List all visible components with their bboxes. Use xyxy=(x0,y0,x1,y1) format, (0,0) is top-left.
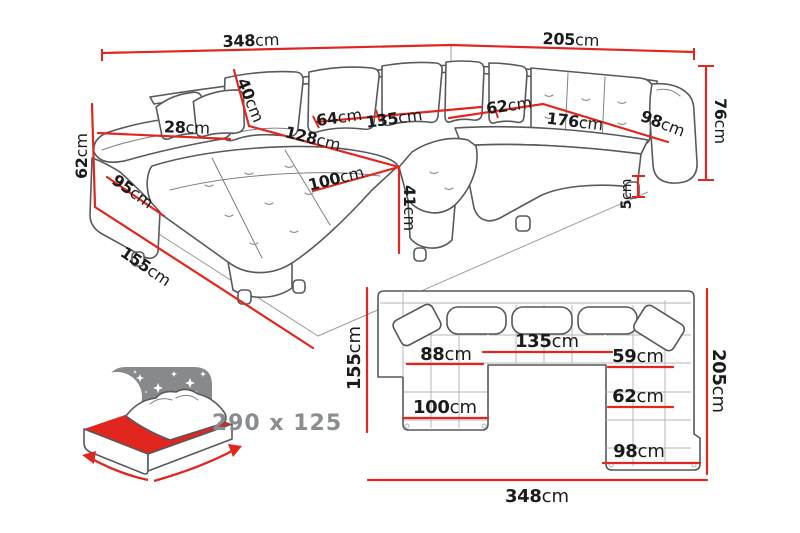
plan-dim-100: 100cm xyxy=(413,397,477,418)
plan-dim-88: 88cm xyxy=(420,344,472,365)
sofa-leg xyxy=(516,216,530,231)
plan-dim-59: 59cm xyxy=(612,346,664,367)
arrow-head xyxy=(228,444,242,457)
sleep-dimensions-label: 290 x 125 xyxy=(212,411,342,436)
dim-height-76: 76cm xyxy=(712,98,731,144)
sleep-function-icon: 290 x 125 xyxy=(82,367,342,481)
diagram-canvas: 348cm205cm76cm62cm95cm155cm28cm40cm64cm1… xyxy=(0,0,800,533)
dim-armrest-28: 28cm xyxy=(164,117,211,138)
dim-height-62: 62cm xyxy=(72,133,91,179)
dim-back-right-205: 205cm xyxy=(542,29,600,50)
plan-dim-98: 98cm xyxy=(613,441,665,462)
plan-back-cushion xyxy=(447,307,506,334)
dim-seat-height-41: 41cm xyxy=(401,185,420,231)
sofa-dimension-diagram: 348cm205cm76cm62cm95cm155cm28cm40cm64cm1… xyxy=(0,0,800,533)
plan-dim-62: 62cm xyxy=(612,386,664,407)
plan-dim-205: 205cm xyxy=(709,349,730,413)
bench-front xyxy=(462,144,641,220)
plan-back-cushion xyxy=(578,307,637,334)
plan-dim-135: 135cm xyxy=(515,331,579,352)
plan-dim-155: 155cm xyxy=(344,326,365,390)
plan-dim-348: 348cm xyxy=(505,486,569,507)
dim-back-left-348: 348cm xyxy=(222,30,280,51)
sofa-leg xyxy=(414,248,426,261)
sofa-leg xyxy=(293,280,305,293)
arrow-head xyxy=(82,451,96,464)
dim-leg-5: 5cm xyxy=(619,179,635,210)
